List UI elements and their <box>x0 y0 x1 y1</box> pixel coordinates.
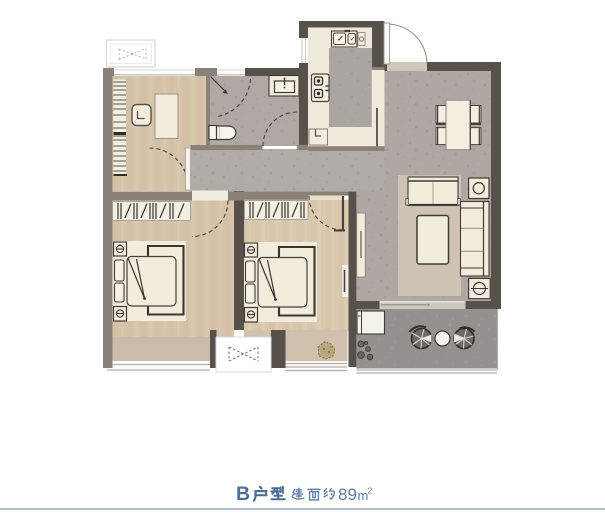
svg-text:B: B <box>236 483 250 505</box>
svg-text:89: 89 <box>338 485 357 504</box>
svg-text:2: 2 <box>368 486 373 496</box>
